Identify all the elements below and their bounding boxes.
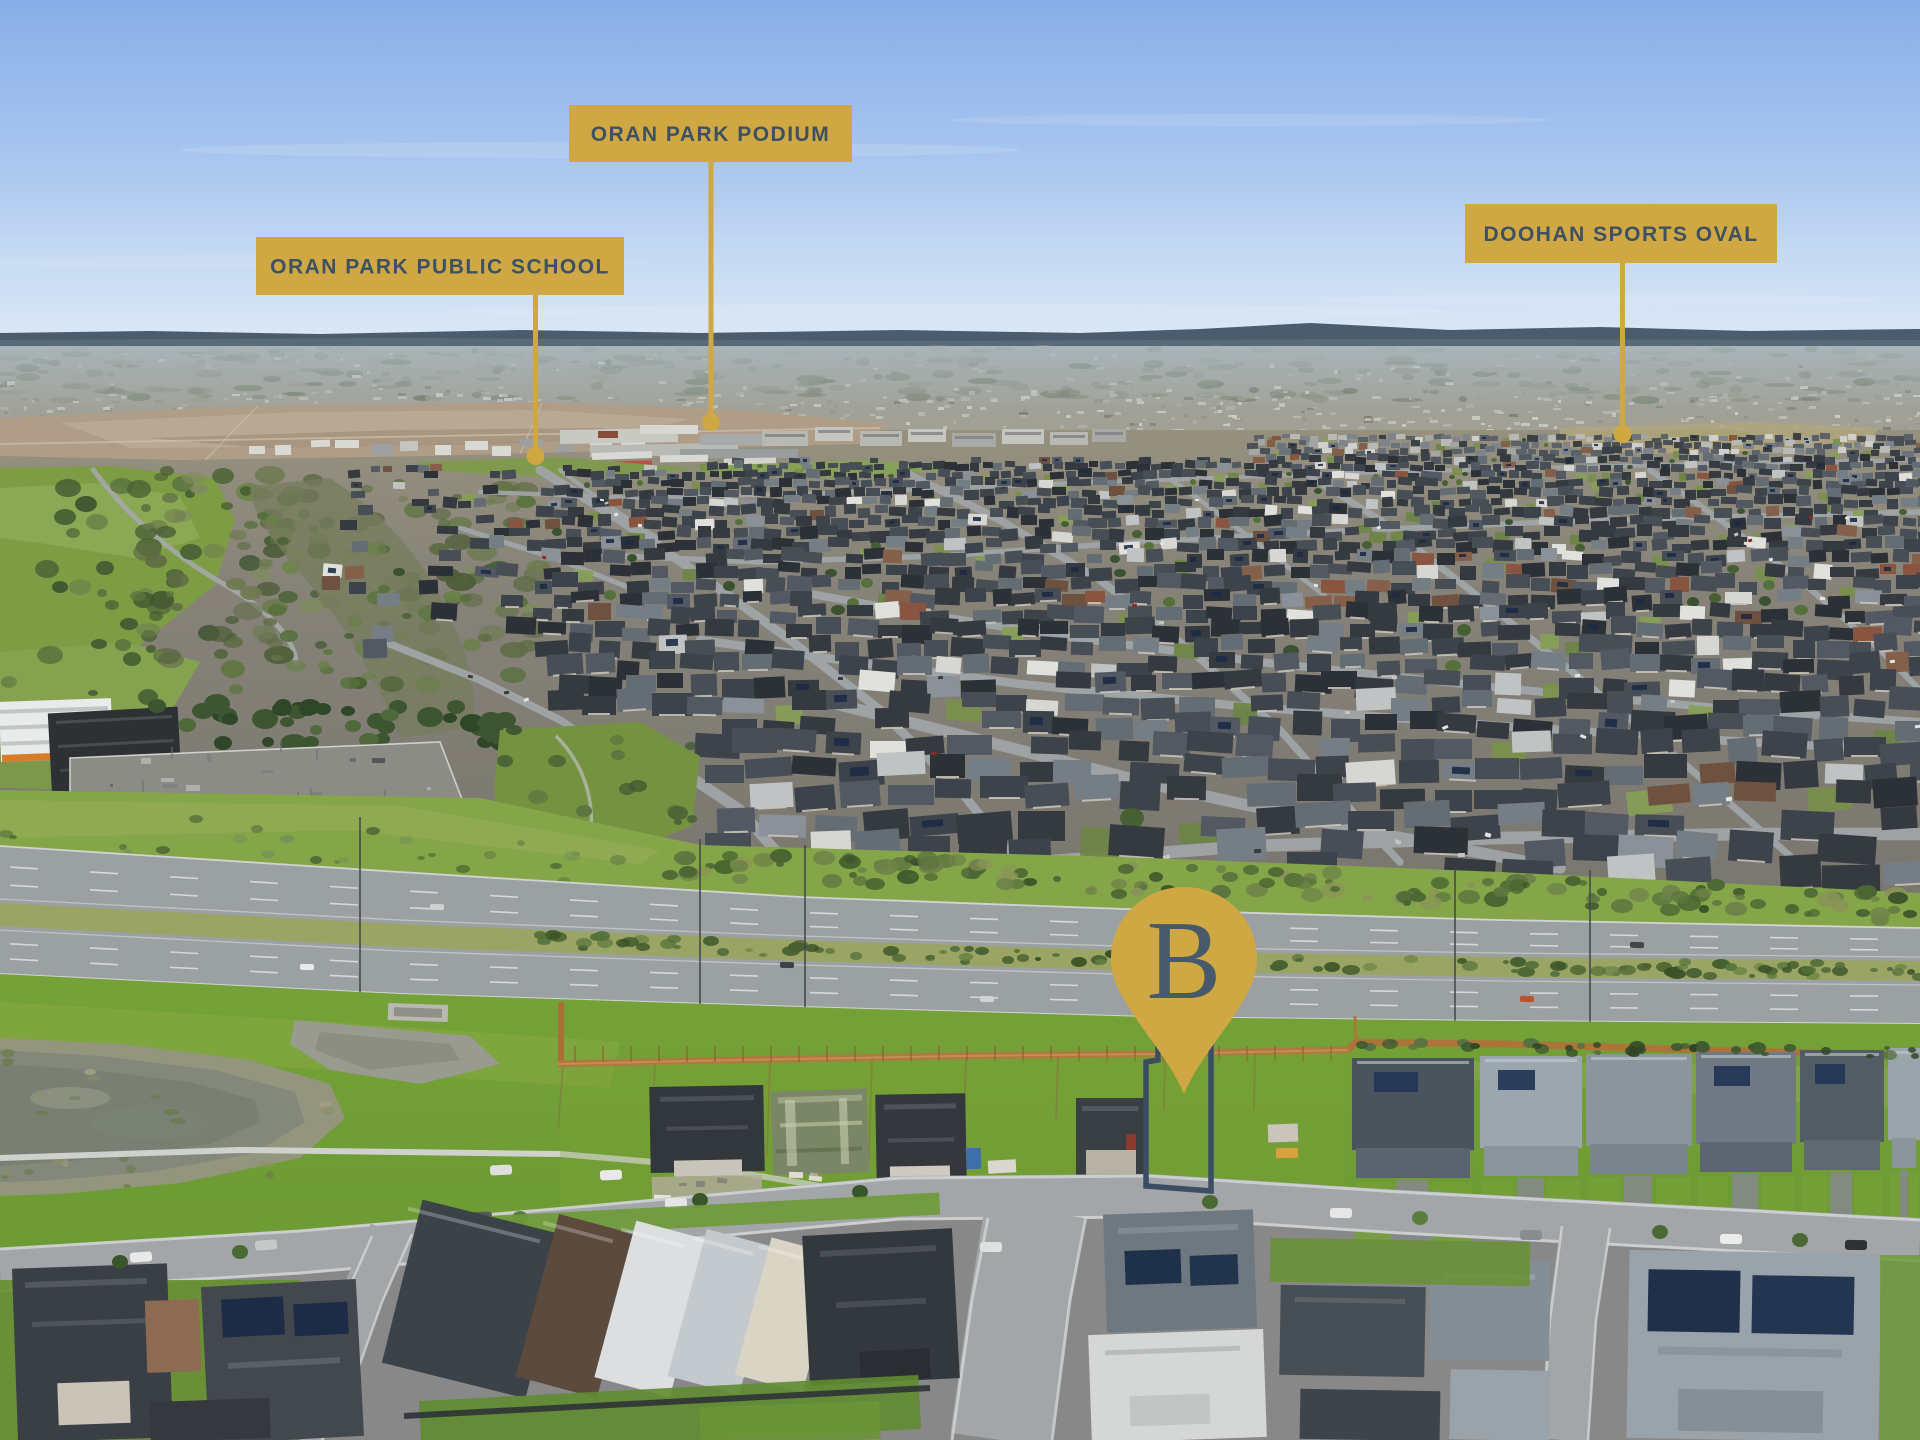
svg-text:B: B: [1147, 899, 1222, 1023]
svg-text:ORAN PARK PODIUM: ORAN PARK PODIUM: [591, 123, 830, 146]
svg-text:ORAN PARK PUBLIC SCHOOL: ORAN PARK PUBLIC SCHOOL: [270, 256, 610, 279]
svg-text:DOOHAN SPORTS OVAL: DOOHAN SPORTS OVAL: [1483, 223, 1758, 246]
